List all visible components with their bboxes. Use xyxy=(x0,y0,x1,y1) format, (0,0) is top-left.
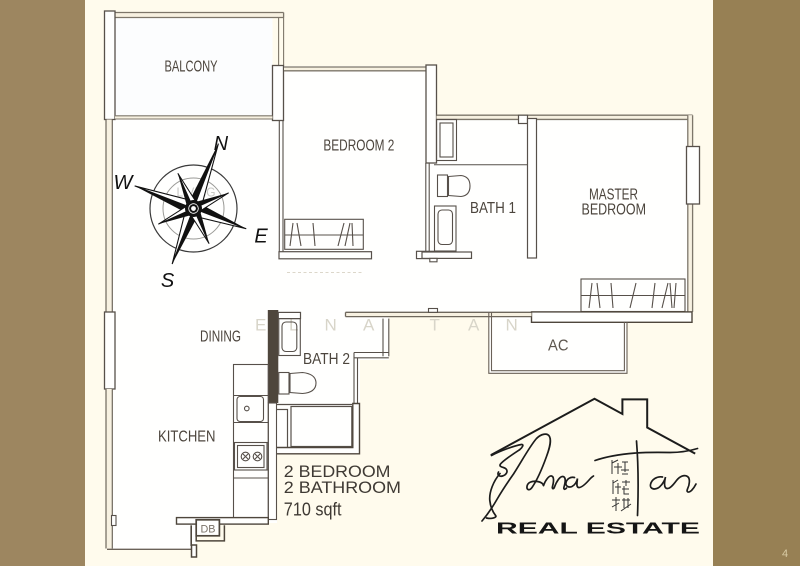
svg-text:KITCHEN: KITCHEN xyxy=(158,429,216,446)
svg-text:DB: DB xyxy=(201,524,216,536)
svg-text:REAL ESTATE: REAL ESTATE xyxy=(496,521,701,538)
svg-text:2 BATHROOM: 2 BATHROOM xyxy=(284,478,401,497)
svg-text:E: E xyxy=(255,316,266,335)
svg-text:S: S xyxy=(161,270,175,292)
svg-text:BALCONY: BALCONY xyxy=(165,59,218,76)
svg-text:BEDROOM 2: BEDROOM 2 xyxy=(323,138,394,155)
svg-text:N: N xyxy=(325,316,337,335)
svg-text:DINING: DINING xyxy=(200,329,241,346)
svg-text:BATH 2: BATH 2 xyxy=(303,351,350,368)
svg-text:710 sqft: 710 sqft xyxy=(284,500,342,520)
svg-text:A: A xyxy=(468,316,480,335)
svg-text:A: A xyxy=(363,316,375,335)
svg-text:AC: AC xyxy=(548,338,569,355)
svg-text:N: N xyxy=(506,316,518,335)
svg-text:N: N xyxy=(214,133,229,155)
svg-text:W: W xyxy=(114,172,135,194)
svg-text:BEDROOM: BEDROOM xyxy=(582,202,647,219)
svg-text:4: 4 xyxy=(782,548,788,560)
svg-text:T: T xyxy=(430,316,440,335)
svg-text:BATH 1: BATH 1 xyxy=(470,200,516,217)
svg-text:E: E xyxy=(254,226,268,248)
